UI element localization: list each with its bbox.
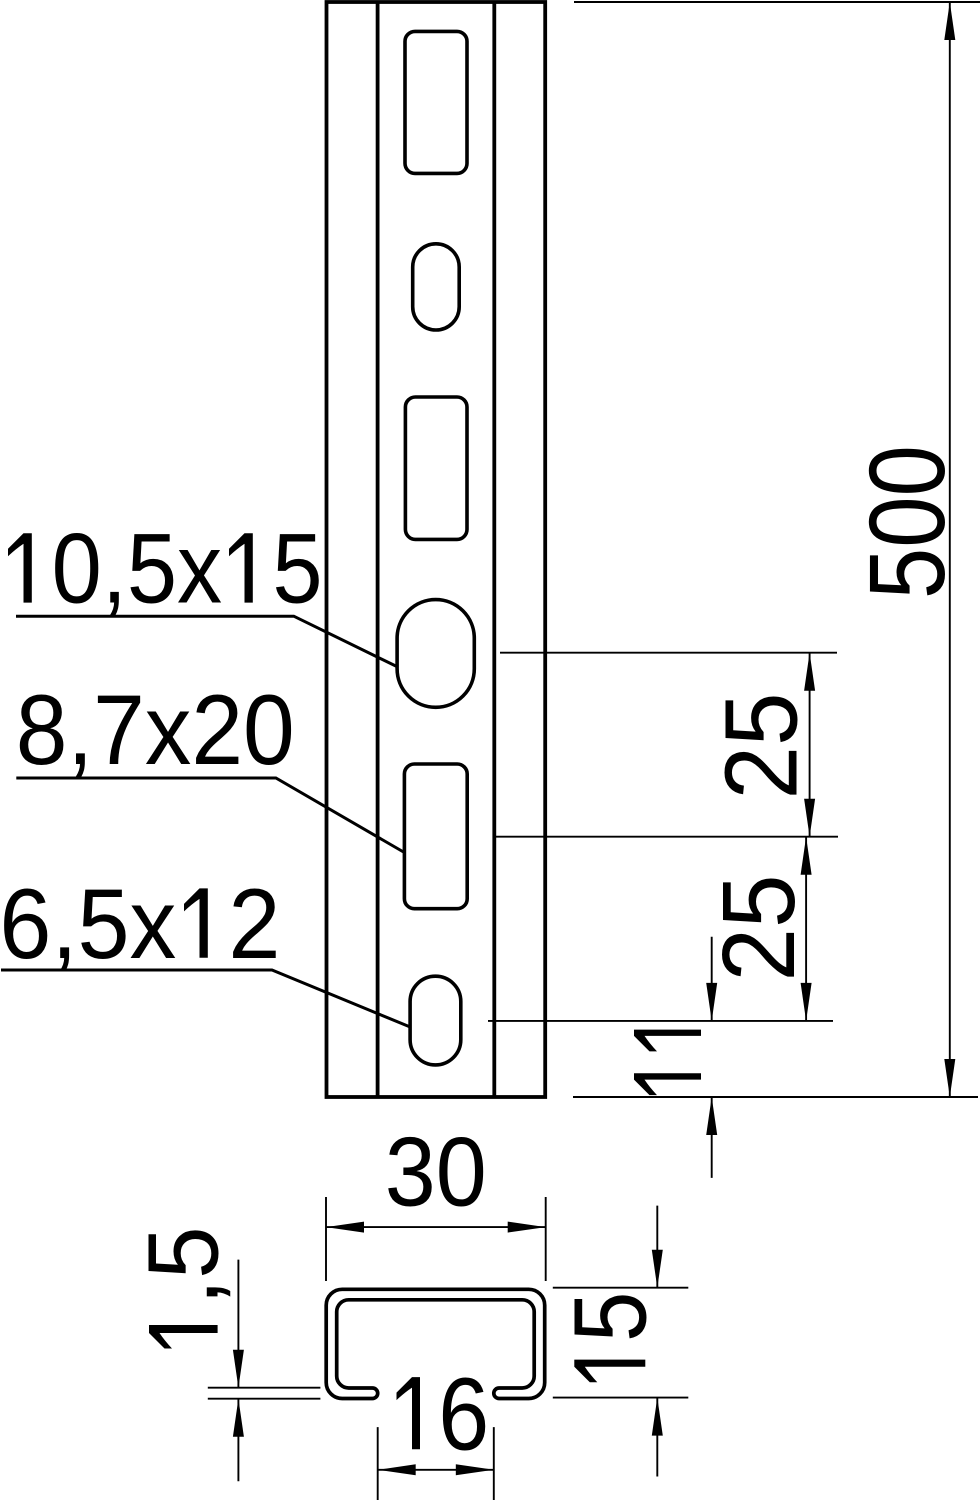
svg-text:25: 25	[704, 693, 819, 800]
svg-text:6,5x12: 6,5x12	[0, 869, 280, 980]
svg-text:25: 25	[701, 875, 816, 982]
svg-text:500: 500	[846, 445, 967, 599]
svg-text:8,7x20: 8,7x20	[16, 675, 295, 786]
svg-text:30: 30	[385, 1117, 487, 1227]
